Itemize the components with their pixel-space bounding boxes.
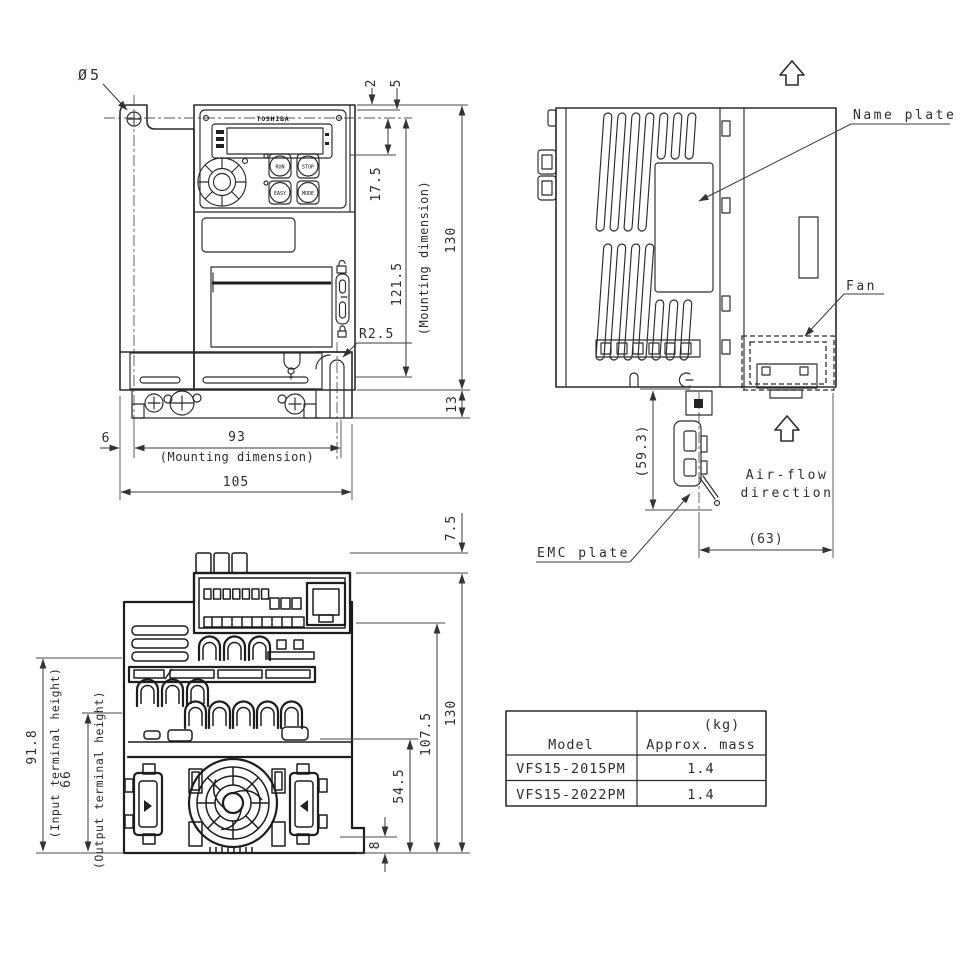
mounting-bracket-right — [290, 764, 327, 844]
terminal-rail — [129, 667, 315, 682]
dimension-drawing: TOSHIBA RU — [0, 0, 960, 960]
screw — [285, 394, 305, 414]
fan-label: Fan — [846, 279, 877, 294]
dim-63: (63) — [748, 532, 783, 547]
easy-button[interactable]: EASY — [269, 181, 291, 204]
name-plate-callout: Name plate — [699, 108, 956, 201]
easy-button-label: EASY — [274, 191, 286, 197]
screw — [145, 394, 163, 412]
dim-output-terminal-note: (Output terminal height) — [92, 691, 106, 869]
bottom-hook — [630, 373, 638, 387]
airflow-direction-label: Air-flow direction — [741, 468, 834, 501]
side-view: Name plate Fan EMC plate Air-flow direct… — [536, 61, 956, 562]
emc-plate-label: EMC plate — [537, 546, 630, 561]
mounting-bracket-left — [125, 764, 162, 844]
dim-130-bottom: 130 — [444, 700, 459, 726]
din-rail-tabs — [538, 150, 556, 200]
dim-59-3: (59.3) — [635, 425, 650, 478]
output-terminals — [137, 680, 308, 742]
name-plate-area — [655, 163, 713, 292]
rj45-port[interactable] — [307, 583, 345, 625]
mode-button[interactable]: MODE — [297, 181, 319, 204]
emc-plate-assembly — [674, 391, 720, 514]
bottom-view — [124, 553, 364, 853]
emc-plate-callout: EMC plate — [536, 494, 690, 562]
outline-drawing-page: TOSHIBA RU — [0, 0, 960, 960]
run-button-label: RUN — [275, 165, 284, 171]
input-terminals — [199, 637, 314, 661]
dim-17-5: 17.5 — [369, 166, 384, 201]
vent-slats-upper — [596, 113, 696, 231]
cable-clamp — [679, 373, 693, 387]
keypad-display — [212, 124, 332, 158]
fan-callout: Fan — [805, 279, 884, 336]
dim-mounting-width-note: (Mounting dimension) — [160, 450, 315, 464]
table-cell-mass: 1.4 — [687, 787, 714, 803]
cover-latch-slider[interactable] — [336, 274, 349, 324]
dim-8: 8 — [368, 841, 383, 850]
table-cell-model: VFS15-2022PM — [516, 787, 626, 803]
jog-dial[interactable] — [198, 158, 248, 206]
dim-91-8: 91.8 — [25, 729, 40, 764]
table-cell-model: VFS15-2015PM — [516, 761, 626, 777]
keypad-panel: TOSHIBA RU — [194, 105, 355, 212]
dim-54-5: 54.5 — [392, 768, 407, 803]
dim-r2-5: R2.5 — [359, 327, 394, 342]
control-terminal-block — [194, 573, 350, 633]
airflow-label-line2: direction — [741, 486, 834, 501]
stop-button-label: STOP — [302, 165, 314, 171]
airflow-label-line1: Air-flow — [746, 468, 829, 483]
dim-6: 6 — [102, 431, 111, 446]
base-section — [120, 352, 352, 418]
label-recess — [202, 218, 295, 252]
table-row: VFS15-2015PM 1.4 — [516, 761, 714, 777]
mounting-foot — [316, 352, 352, 418]
table-header-unit: (kg) — [704, 717, 741, 733]
unlock-icon — [337, 261, 346, 274]
dim-130-front: 130 — [444, 227, 459, 253]
key-icon — [288, 368, 294, 379]
fillet-callout: R2.5 — [343, 327, 412, 357]
table-header-model: Model — [548, 737, 594, 753]
dim-mounting-height-note: (Mounting dimension) — [417, 181, 431, 336]
dim-107-5: 107.5 — [419, 712, 434, 756]
lock-icon — [338, 326, 346, 337]
dim-offset-2: 2 — [364, 79, 379, 88]
mode-button-label: MODE — [302, 191, 314, 197]
table-row: VFS15-2022PM 1.4 — [516, 787, 714, 803]
dim-13: 13 — [445, 395, 460, 413]
fan-dashed-outline — [742, 336, 834, 398]
airflow-up-arrow-bottom-icon — [775, 416, 799, 441]
dim-input-terminal-note: (Input terminal height) — [48, 668, 62, 839]
mounting-plate — [132, 389, 316, 418]
dim-121-5: 121.5 — [390, 262, 405, 306]
toshiba-logo: TOSHIBA — [257, 115, 290, 123]
cooling-fan — [189, 759, 285, 853]
terminal-cover[interactable] — [211, 267, 332, 347]
dim-hole-diameter: Ø5 — [78, 66, 102, 84]
dim-offset-5: 5 — [389, 79, 404, 88]
dim-93: 93 — [228, 430, 246, 445]
screw — [170, 391, 194, 415]
table-cell-mass: 1.4 — [687, 761, 714, 777]
front-view: TOSHIBA RU — [104, 95, 412, 459]
side-slot — [799, 217, 818, 278]
hole-callout: Ø5 — [78, 66, 127, 110]
dim-7-5: 7.5 — [444, 515, 459, 541]
mass-table: Model (kg) Approx. mass VFS15-2015PM 1.4… — [506, 711, 766, 806]
bottom-vent-slats — [132, 626, 188, 661]
name-plate-label: Name plate — [853, 108, 956, 123]
dim-105: 105 — [223, 475, 249, 490]
table-header-mass: Approx. mass — [646, 737, 756, 753]
airflow-up-arrow-top-icon — [780, 61, 804, 85]
dim-66: 66 — [59, 770, 74, 788]
